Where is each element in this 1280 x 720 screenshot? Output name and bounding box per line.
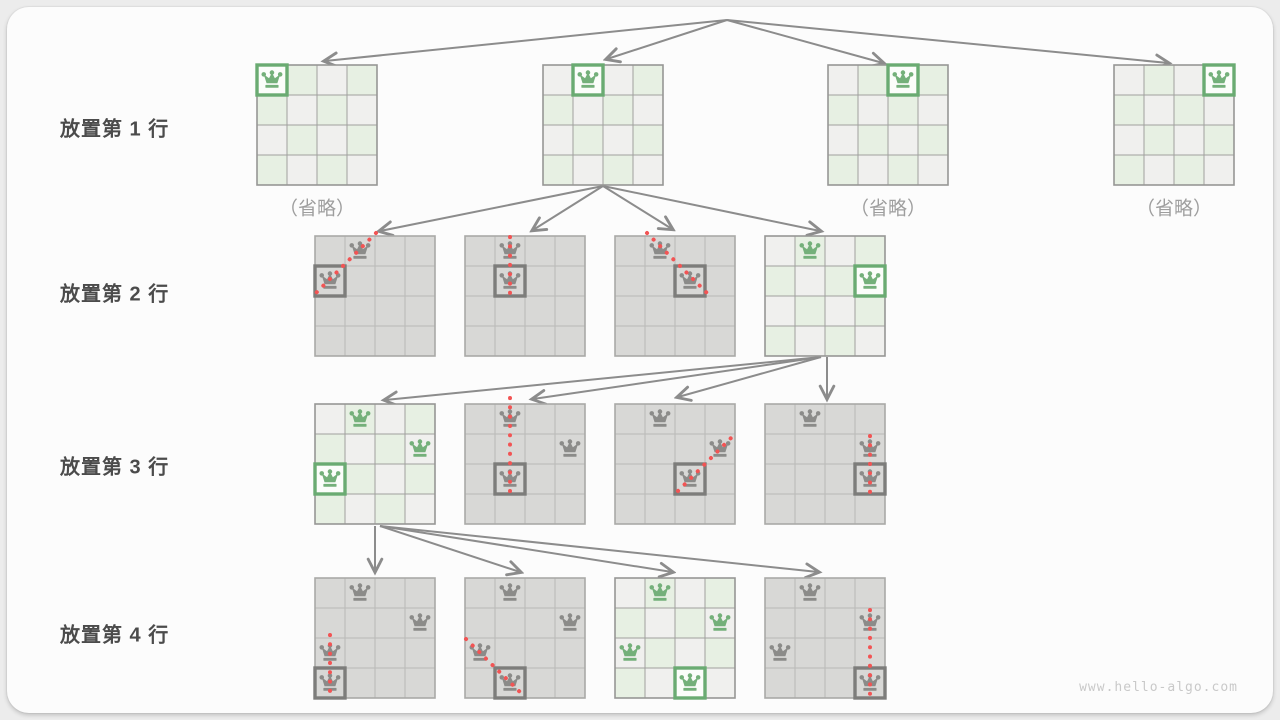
board-cell [345,494,375,524]
board-cell [345,296,375,326]
board-cell [1174,155,1204,185]
board-row2-option2 [464,235,586,357]
board-cell [315,326,345,356]
board-cell [825,434,855,464]
board-cell [645,296,675,326]
board-cell [615,326,645,356]
board-cell [1144,65,1174,95]
board-cell [615,668,645,698]
board-cell [1204,95,1234,125]
board-cell [795,608,825,638]
board-cell [525,296,555,326]
board-cell [675,608,705,638]
board-cell [375,266,405,296]
board-cell [525,464,555,494]
board-row3-option2 [464,403,586,525]
board-row3-option1 [314,403,436,525]
board-cell [315,434,345,464]
board-cell [375,608,405,638]
board-cell [795,434,825,464]
board-cell [675,404,705,434]
board-cell [705,578,735,608]
board-cell [405,494,435,524]
board-cell [675,578,705,608]
board-cell [405,668,435,698]
board-cell [375,236,405,266]
board-cell [615,578,645,608]
board-cell [555,296,585,326]
board-cell [825,296,855,326]
tree-edge-arrow [533,357,821,399]
board-cell [645,494,675,524]
board-cell [765,464,795,494]
board-cell [287,155,317,185]
board-row1-option4 [1113,64,1235,186]
board-cell [375,326,405,356]
board-cell [825,638,855,668]
board-cell [495,608,525,638]
board-cell [573,155,603,185]
board-cell [375,464,405,494]
board-cell [405,236,435,266]
board-cell [495,326,525,356]
board-row3-option3 [614,403,736,525]
board-cell [855,326,885,356]
board-cell [317,65,347,95]
board-cell [555,266,585,296]
board-cell [705,326,735,356]
tree-edge-arrow [385,357,821,400]
board-cell [543,125,573,155]
board-row1-option2 [542,64,664,186]
board-cell [1144,155,1174,185]
board-cell [918,95,948,125]
board-cell [345,638,375,668]
board-cell [345,668,375,698]
row-label: 放置第 3 行 [60,451,169,480]
board-cell [525,608,555,638]
board-cell [603,155,633,185]
board-cell [765,266,795,296]
board-cell [828,95,858,125]
board-cell [855,296,885,326]
board-cell [828,125,858,155]
board-cell [1114,95,1144,125]
board-cell [795,464,825,494]
tree-edge-arrow [380,526,818,572]
board-cell [287,125,317,155]
omitted-label: （省略） [279,194,355,221]
board-cell [795,668,825,698]
board-cell [918,65,948,95]
board-cell [615,296,645,326]
board-cell [317,125,347,155]
board-cell [603,65,633,95]
board-cell [1204,125,1234,155]
board-cell [555,638,585,668]
board-cell [615,434,645,464]
tree-edge-arrow [380,186,603,231]
board-cell [825,578,855,608]
board-cell [257,155,287,185]
board-cell [405,638,435,668]
board-cell [705,236,735,266]
board-cell [315,578,345,608]
board-cell [465,668,495,698]
board-cell [345,326,375,356]
board-cell [633,155,663,185]
board-cell [573,125,603,155]
board-cell [287,65,317,95]
board-cell [465,464,495,494]
board-cell [645,608,675,638]
board-cell [257,95,287,125]
board-cell [405,266,435,296]
board-cell [405,296,435,326]
board-cell [465,608,495,638]
board-cell [1114,65,1144,95]
board-cell [347,95,377,125]
board-cell [675,236,705,266]
board-cell [645,266,675,296]
board-cell [765,578,795,608]
board-cell [347,125,377,155]
tree-edge-arrow [727,20,883,63]
board-cell [317,155,347,185]
board-cell [795,494,825,524]
board-cell [465,578,495,608]
board-cell [315,296,345,326]
board-cell [615,404,645,434]
board-row2-option3 [614,235,736,357]
board-cell [675,434,705,464]
board-cell [825,668,855,698]
board-cell [615,464,645,494]
board-cell [345,464,375,494]
board-cell [888,125,918,155]
tree-edge-arrow [380,526,672,572]
board-cell [495,494,525,524]
board-cell [855,638,885,668]
board-cell [615,608,645,638]
board-cell [705,296,735,326]
board-cell [615,494,645,524]
board-cell [795,266,825,296]
board-cell [765,326,795,356]
row-label: 放置第 4 行 [60,619,169,648]
board-cell [603,95,633,125]
board-cell [828,65,858,95]
board-cell [573,95,603,125]
board-cell [315,236,345,266]
board-cell [465,296,495,326]
board-cell [543,155,573,185]
board-cell [825,494,855,524]
board-cell [615,266,645,296]
board-cell [765,296,795,326]
board-cell [633,95,663,125]
board-cell [375,404,405,434]
board-cell [705,266,735,296]
board-cell [345,608,375,638]
board-cell [1144,95,1174,125]
board-cell [405,326,435,356]
board-cell [795,638,825,668]
board-cell [765,494,795,524]
board-cell [705,404,735,434]
board-cell [765,434,795,464]
board-cell [465,494,495,524]
board-cell [555,578,585,608]
board-row1-option3 [827,64,949,186]
board-cell [543,65,573,95]
board-cell [405,464,435,494]
board-cell [858,65,888,95]
board-cell [317,95,347,125]
board-cell [825,266,855,296]
board-cell [1174,125,1204,155]
tree-edge-arrow [678,357,821,397]
board-cell [645,638,675,668]
row-label: 放置第 2 行 [60,278,169,307]
board-cell [405,404,435,434]
board-cell [795,296,825,326]
board-cell [918,125,948,155]
board-row2-option1 [314,235,436,357]
board-cell [347,155,377,185]
board-cell [918,155,948,185]
board-cell [603,125,633,155]
board-cell [555,494,585,524]
board-cell [858,155,888,185]
board-cell [858,95,888,125]
board-cell [525,326,555,356]
board-cell [633,125,663,155]
board-cell [645,464,675,494]
board-cell [495,638,525,668]
board-cell [345,266,375,296]
board-cell [525,266,555,296]
board-cell [855,578,885,608]
board-row4-option1 [314,577,436,699]
board-cell [257,125,287,155]
board-cell [1144,125,1174,155]
board-cell [855,236,885,266]
n-queens-backtracking-diagram: www.hello-algo.com 放置第 1 行放置第 2 行放置第 3 行… [0,0,1280,720]
board-row4-option3 [614,577,736,699]
board-cell [1174,65,1204,95]
board-cell [375,296,405,326]
board-cell [525,236,555,266]
board-cell [525,578,555,608]
board-cell [465,326,495,356]
board-cell [525,668,555,698]
board-cell [555,668,585,698]
board-cell [315,494,345,524]
board-cell [888,95,918,125]
board-cell [555,236,585,266]
board-cell [825,236,855,266]
board-cell [525,494,555,524]
board-cell [825,404,855,434]
board-cell [675,326,705,356]
board-cell [615,236,645,266]
board-cell [765,608,795,638]
board-cell [855,494,885,524]
board-cell [465,434,495,464]
board-row4-option4 [764,577,886,699]
board-cell [765,236,795,266]
board-cell [1114,155,1144,185]
board-cell [645,668,675,698]
board-cell [555,326,585,356]
board-row4-option2 [464,577,586,699]
tree-edge-arrow [603,186,820,231]
board-cell [375,638,405,668]
board-cell [705,494,735,524]
omitted-label: （省略） [850,194,926,221]
board-cell [645,434,675,464]
board-cell [705,668,735,698]
board-cell [705,638,735,668]
board-cell [495,434,525,464]
board-cell [495,296,525,326]
board-cell [633,65,663,95]
board-cell [347,65,377,95]
board-cell [765,404,795,434]
board-cell [855,404,885,434]
watermark: www.hello-algo.com [1079,680,1238,695]
board-cell [675,296,705,326]
omitted-label: （省略） [1136,194,1212,221]
board-cell [675,638,705,668]
board-row2-option4 [764,235,886,357]
board-cell [1114,125,1144,155]
board-cell [375,668,405,698]
board-cell [375,434,405,464]
board-cell [675,494,705,524]
board-cell [345,434,375,464]
board-cell [465,236,495,266]
board-cell [888,155,918,185]
board-cell [645,326,675,356]
board-cell [315,404,345,434]
board-cell [1174,95,1204,125]
board-cell [525,638,555,668]
board-cell [465,266,495,296]
board-cell [555,404,585,434]
board-cell [765,668,795,698]
board-cell [287,95,317,125]
board-cell [1204,155,1234,185]
board-cell [525,404,555,434]
board-cell [858,125,888,155]
board-cell [525,434,555,464]
row-label: 放置第 1 行 [60,113,169,142]
board-cell [825,326,855,356]
board-cell [828,155,858,185]
board-cell [825,608,855,638]
board-cell [795,326,825,356]
board-cell [405,578,435,608]
board-cell [375,578,405,608]
board-cell [825,464,855,494]
board-cell [465,404,495,434]
tree-edge-arrow [727,20,1168,63]
board-cell [375,494,405,524]
board-cell [543,95,573,125]
board-cell [555,464,585,494]
board-cell [705,464,735,494]
board-row1-option1 [256,64,378,186]
board-row3-option4 [764,403,886,525]
